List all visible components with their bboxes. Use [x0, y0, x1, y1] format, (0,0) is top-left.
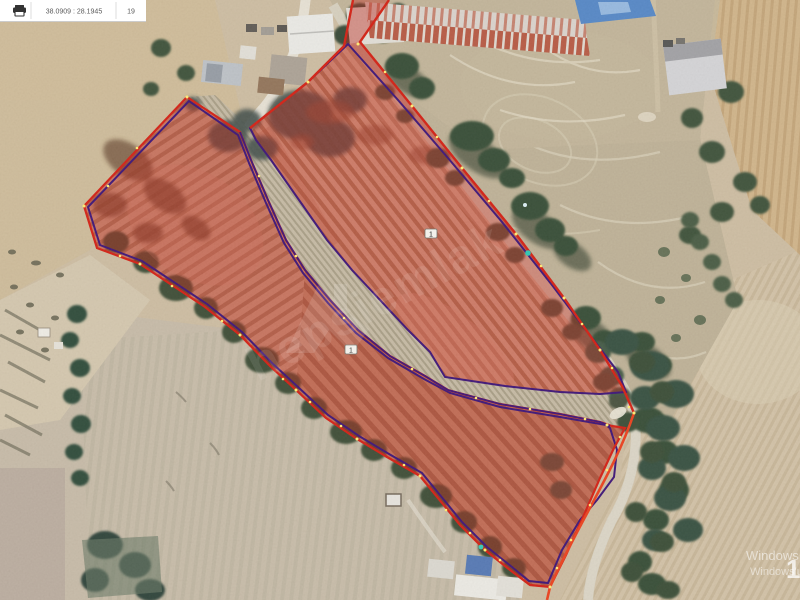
svg-text:19: 19 — [127, 9, 135, 16]
svg-text:38.0909 : 28.1945: 38.0909 : 28.1945 — [46, 9, 103, 16]
svg-text:1: 1 — [786, 554, 800, 584]
svg-text:1: 1 — [429, 232, 433, 239]
